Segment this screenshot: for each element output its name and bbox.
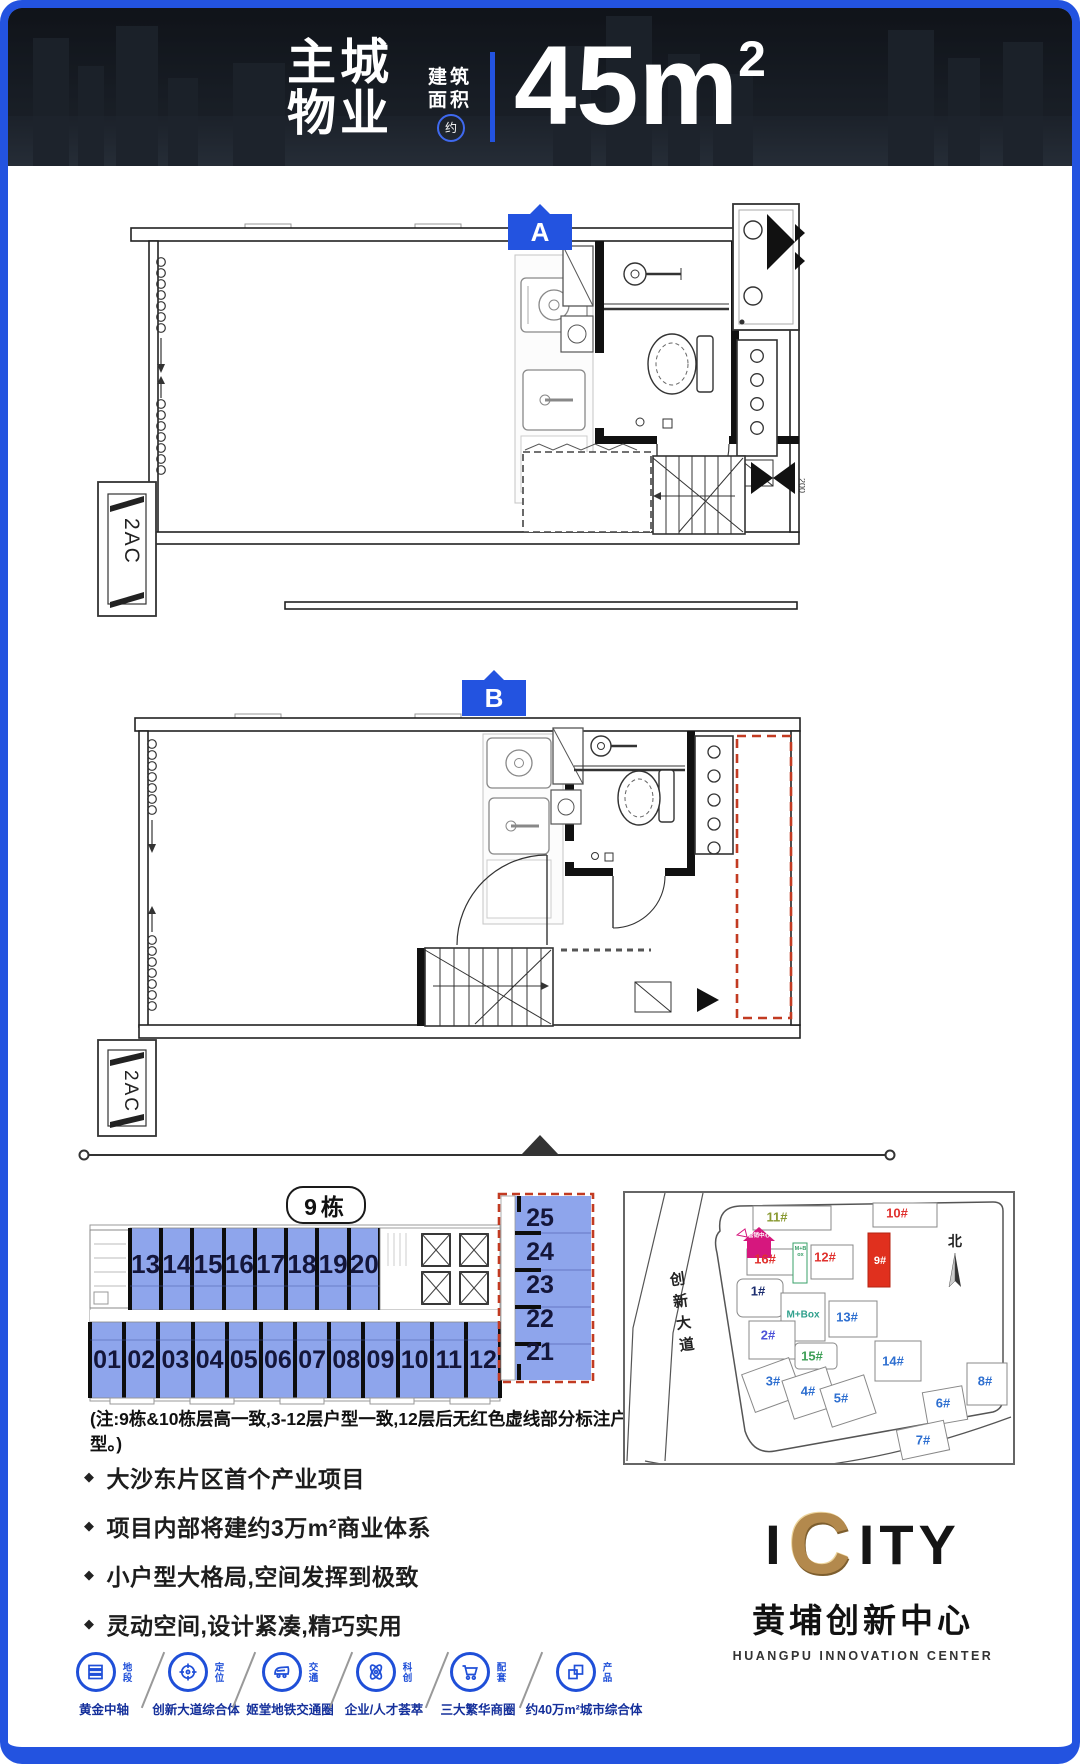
kitchen-sink-icon: [489, 798, 549, 854]
ac-label: 2AC: [120, 518, 143, 565]
unit-number: 03: [158, 1344, 192, 1376]
outer-walls: [131, 228, 799, 609]
basin-box-icon: [561, 316, 593, 352]
approx-badge: 约: [437, 114, 465, 142]
closet-dashed: [523, 444, 651, 532]
feature-item: ◆大沙东片区首个产业项目: [84, 1460, 431, 1494]
unit-number: 22: [508, 1303, 572, 1337]
floor-plan-a-drawing: 200 2AC: [95, 200, 805, 620]
unit-number: 11: [432, 1344, 466, 1376]
stairs: [653, 456, 745, 534]
unit-number: 16: [224, 1248, 255, 1280]
unit-number: 15: [193, 1248, 224, 1280]
logo-gold-ring-icon: C: [789, 1501, 856, 1587]
diamond-bullet-icon: ◆: [84, 1567, 95, 1583]
amenity-label: 约40万m²城市综合体: [519, 1699, 649, 1718]
ac-unit-block: 2AC: [98, 1040, 156, 1136]
logo-name-en: HUANGPU INNOVATION CENTER: [728, 1649, 998, 1663]
cart-icon: [450, 1652, 490, 1692]
unit-number: 10: [398, 1344, 432, 1376]
feature-text: 项目内部将建约3万m²商业体系: [107, 1509, 431, 1543]
unit-number: 21: [508, 1336, 572, 1370]
map-building-label: 2#: [761, 1328, 775, 1343]
diamond-bullet-icon: ◆: [84, 1518, 95, 1534]
target-icon: [168, 1652, 208, 1692]
header-title-line1: 主城: [287, 38, 393, 89]
unit-number: 19: [318, 1248, 349, 1280]
map-building-label: 16#: [754, 1252, 776, 1267]
map-building-label: M+Box: [786, 1310, 819, 1321]
unit-row-bottom: 010203040506070809101112: [90, 1344, 500, 1376]
diamond-bullet-icon: ◆: [84, 1616, 95, 1632]
unit-column-side: 2524232221: [508, 1202, 572, 1370]
kitchen-sink-icon: [523, 370, 585, 430]
header-banner: 主城 物业 建筑 面积 约 45m 2: [8, 8, 1072, 166]
map-building-label: 13#: [836, 1310, 858, 1325]
cabinet-icon: [553, 728, 583, 784]
feature-text: 灵动空间,设计紧凑,精巧实用: [107, 1607, 403, 1641]
area-value-superscript: 2: [738, 34, 766, 84]
mbox-small-label: M+Box: [794, 1246, 807, 1258]
floor-box-icon: [605, 853, 613, 861]
unit-number: 06: [261, 1344, 295, 1376]
unit-number: 08: [329, 1344, 363, 1376]
elevator-block: [733, 204, 805, 330]
area-value: 45m 2: [514, 8, 766, 166]
amenity-tag: 配套: [493, 1654, 507, 1690]
unit-number: 12: [466, 1344, 500, 1376]
floor-drain-icon: [636, 418, 644, 426]
unit-row-top: 1314151617181920: [130, 1248, 380, 1280]
unit-number: 18: [286, 1248, 317, 1280]
window-coil-symbols: [148, 740, 157, 1011]
logo-prefix: I: [765, 1512, 786, 1577]
logo-suffix: ITY: [859, 1512, 961, 1577]
toilet-icon: [618, 770, 674, 825]
corridor: [90, 1310, 500, 1322]
unit-number: 07: [295, 1344, 329, 1376]
map-building-label: 4#: [801, 1384, 815, 1399]
icity-logo: ICITY: [728, 1498, 998, 1590]
plan-b-marker: B: [462, 680, 526, 716]
map-building-label: 3#: [766, 1374, 780, 1389]
unit-number: 09: [363, 1344, 397, 1376]
toilet-icon: [648, 334, 713, 394]
stairs: [425, 948, 553, 1026]
map-building-label: 1#: [751, 1284, 765, 1299]
section-divider: [70, 1132, 920, 1178]
floor-drain-icon: [592, 853, 599, 860]
shower-icon: [624, 263, 681, 285]
feature-text: 小户型大格局,空间发挥到极致: [107, 1558, 419, 1592]
map-building-label: 11#: [767, 1210, 788, 1225]
plate-note: (注:9栋&10栋层高一致,3-12层户型一致,12层后无红色虚线部分标注户型。…: [90, 1406, 630, 1456]
unit-number: 23: [508, 1269, 572, 1303]
floor-box-icon: [663, 419, 672, 428]
pointer-triangle-icon: [522, 1135, 558, 1154]
map-building-label: 5#: [834, 1391, 848, 1406]
feature-item: ◆项目内部将建约3万m²商业体系: [84, 1509, 431, 1543]
flyer-page: 主城 物业 建筑 面积 约 45m 2 A: [0, 0, 1080, 1764]
amenity-tag: 产品: [599, 1654, 613, 1690]
header-divider-line: [490, 52, 495, 142]
feature-item: ◆灵动空间,设计紧凑,精巧实用: [84, 1607, 431, 1641]
stove-icon: [487, 738, 551, 788]
map-building-label: 15#: [801, 1349, 823, 1364]
unit-number: 02: [124, 1344, 158, 1376]
red-dashed-type-outline: [737, 736, 791, 1018]
unit-number: 13: [130, 1248, 161, 1280]
floor-plan-b-drawing: 2AC: [95, 640, 805, 1145]
map-building-label: 10#: [886, 1206, 908, 1221]
utility-box: [635, 982, 719, 1012]
area-label-line2: 面积: [428, 89, 472, 112]
door-arc: [613, 876, 665, 928]
basin-box-icon: [551, 790, 581, 824]
pipe-shaft: [695, 736, 733, 854]
feature-text: 大沙东片区首个产业项目: [107, 1460, 366, 1494]
unit-number: 20: [349, 1248, 380, 1280]
feature-list: ◆大沙东片区首个产业项目◆项目内部将建约3万m²商业体系◆小户型大格局,空间发挥…: [84, 1460, 431, 1656]
project-logo: ICITY 黄埔创新中心 HUANGPU INNOVATION CENTER: [728, 1498, 998, 1663]
building-9-label: 9栋: [286, 1186, 366, 1224]
ac-unit-block: 2AC: [98, 482, 156, 616]
header-title-line2: 物业: [287, 89, 393, 140]
plan-a-marker: A: [508, 214, 572, 250]
marketing-center-label: 营销中心: [747, 1233, 771, 1239]
unit-number: 05: [227, 1344, 261, 1376]
area-value-number: 45m: [514, 8, 738, 166]
flow-arrows: [148, 844, 156, 914]
atom-icon: [356, 1652, 396, 1692]
cabinet-icon: [563, 246, 593, 306]
map-building-label: 8#: [978, 1374, 992, 1389]
district-icon: [76, 1652, 116, 1692]
map-building-label: 14#: [882, 1354, 904, 1369]
counter-icon: [487, 860, 551, 918]
unit-number: 04: [193, 1344, 227, 1376]
site-map: 创新大道 北 营销中心 M+Box 11#10#16#12#9#1#M+Box1…: [623, 1191, 1015, 1465]
elevator-core: [380, 1228, 500, 1310]
unit-number: 17: [255, 1248, 286, 1280]
header-title: 主城 物业: [287, 38, 393, 140]
dimension-label: 200: [797, 478, 805, 493]
bathroom-zone: [574, 736, 685, 928]
amenity-tag: 交通: [305, 1654, 319, 1690]
header-area-label: 建筑 面积: [428, 66, 472, 112]
map-building-label: 12#: [814, 1250, 836, 1265]
unit-number: 24: [508, 1236, 572, 1270]
feature-item: ◆小户型大格局,空间发挥到极致: [84, 1558, 431, 1592]
unit-number: 14: [161, 1248, 192, 1280]
train-icon: [262, 1652, 302, 1692]
ac-label: 2AC: [120, 1070, 141, 1113]
map-building-label: 6#: [936, 1396, 950, 1411]
map-building-label: 9#: [874, 1255, 886, 1267]
unit-number: 25: [508, 1202, 572, 1236]
area-label-line1: 建筑: [428, 66, 472, 89]
product-icon: [556, 1652, 596, 1692]
amenity-tag: 定位: [211, 1654, 225, 1690]
amenity-tag: 科创: [399, 1654, 413, 1690]
stair-core-left: [90, 1230, 130, 1308]
shower-icon: [591, 736, 637, 756]
logo-name-cn: 黄埔创新中心: [728, 1594, 998, 1642]
unit-number: 01: [90, 1344, 124, 1376]
diamond-bullet-icon: ◆: [84, 1469, 95, 1485]
north-needle-icon: [949, 1253, 961, 1287]
north-label: 北: [948, 1231, 962, 1251]
map-building-label: 7#: [916, 1433, 930, 1448]
